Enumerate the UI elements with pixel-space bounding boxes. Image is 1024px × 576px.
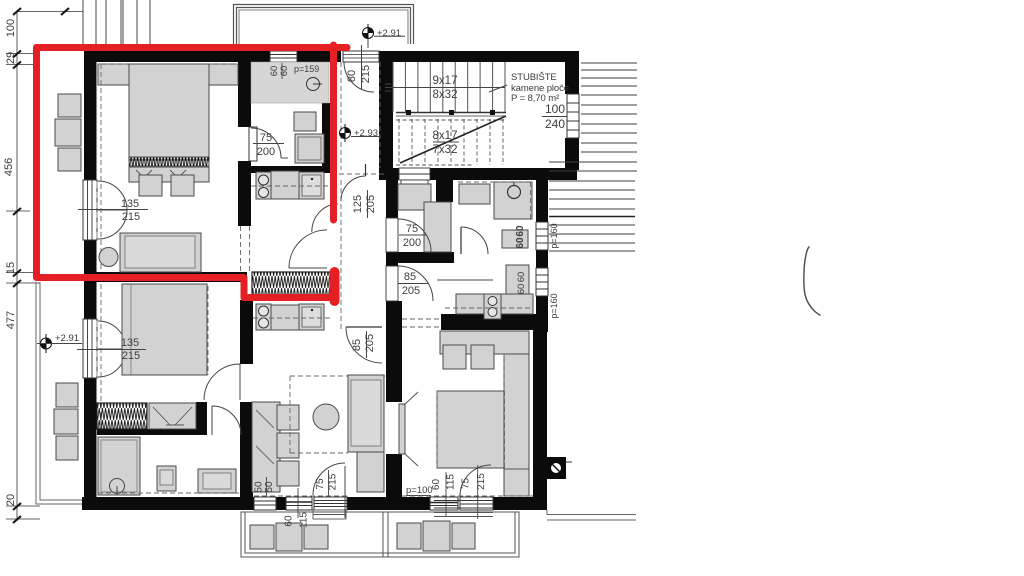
- svg-text:200: 200: [257, 146, 275, 158]
- svg-text:8x17: 8x17: [433, 130, 458, 142]
- svg-text:7x32: 7x32: [433, 144, 458, 156]
- svg-text:+2.91: +2.91: [55, 333, 79, 344]
- svg-text:456: 456: [3, 158, 15, 176]
- svg-text:205: 205: [365, 195, 377, 213]
- svg-text:215: 215: [122, 211, 140, 223]
- svg-text:+2.91: +2.91: [377, 28, 401, 39]
- svg-text:215: 215: [122, 350, 140, 362]
- svg-text:75: 75: [406, 223, 418, 235]
- svg-text:75: 75: [315, 478, 326, 490]
- svg-text:200: 200: [403, 237, 421, 249]
- svg-text:60: 60: [431, 479, 442, 491]
- svg-text:240: 240: [545, 117, 565, 131]
- svg-text:p=100: p=100: [406, 485, 433, 496]
- svg-text:20: 20: [5, 494, 17, 506]
- svg-text:9x17: 9x17: [433, 75, 458, 87]
- svg-text:60: 60: [516, 272, 527, 283]
- svg-text:115: 115: [446, 474, 457, 490]
- svg-text:215: 215: [328, 473, 339, 490]
- svg-text:15: 15: [5, 262, 17, 274]
- svg-text:100: 100: [545, 102, 565, 116]
- svg-text:60: 60: [515, 237, 526, 249]
- svg-text:+2.93: +2.93: [354, 128, 378, 139]
- svg-text:205: 205: [364, 334, 376, 352]
- svg-text:STUBIŠTE: STUBIŠTE: [511, 72, 557, 83]
- svg-text:60: 60: [279, 66, 290, 77]
- svg-text:60: 60: [515, 225, 526, 237]
- svg-text:85: 85: [351, 339, 363, 351]
- svg-text:p=160: p=160: [549, 223, 559, 248]
- svg-text:125: 125: [352, 195, 364, 213]
- svg-text:60: 60: [516, 284, 527, 295]
- svg-text:p=160: p=160: [549, 293, 559, 318]
- svg-text:29: 29: [5, 52, 17, 64]
- svg-text:8x32: 8x32: [433, 89, 458, 101]
- svg-text:135: 135: [121, 337, 139, 349]
- svg-text:75: 75: [260, 132, 272, 144]
- svg-text:115: 115: [299, 512, 310, 528]
- svg-text:75: 75: [461, 478, 472, 490]
- svg-text:p=159: p=159: [294, 64, 319, 74]
- svg-text:60: 60: [284, 515, 295, 527]
- svg-text:85: 85: [404, 271, 416, 283]
- svg-text:135: 135: [121, 198, 139, 210]
- svg-text:50: 50: [254, 481, 265, 493]
- svg-text:205: 205: [402, 285, 420, 297]
- svg-text:80: 80: [346, 70, 358, 82]
- svg-text:50: 50: [264, 481, 275, 493]
- svg-text:100: 100: [5, 19, 17, 37]
- svg-text:477: 477: [5, 311, 17, 329]
